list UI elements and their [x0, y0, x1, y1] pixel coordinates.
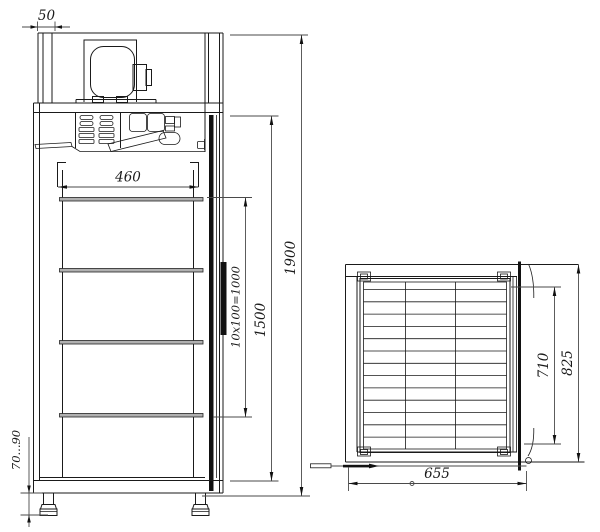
shelf-1 [60, 198, 204, 202]
door-handle [221, 262, 227, 335]
door-plan [518, 262, 521, 471]
dim-label-leg-height: 70...90 [9, 430, 23, 470]
technical-drawing-page: 50 460 10x100=1000 1500 [0, 0, 600, 532]
dim-label-overall-width: 655 [424, 466, 450, 482]
dim-label-shelf-pitch: 10x100=1000 [229, 266, 243, 348]
dim-label-interior-height: 1500 [253, 302, 269, 337]
door-edge [209, 115, 214, 491]
dim-label-overall-height: 1900 [283, 240, 299, 275]
dim-label-interior-depth: 710 [536, 352, 552, 378]
dim-label-overall-depth: 825 [560, 350, 576, 376]
shelf-3 [60, 341, 204, 345]
shelf-4 [60, 414, 204, 418]
dim-label-interior-width: 460 [114, 170, 141, 186]
shelf-2 [60, 269, 204, 273]
dim-label-top-offset: 50 [38, 8, 56, 24]
cabinet-dimension-drawing: 50 460 10x100=1000 1500 [0, 0, 600, 532]
